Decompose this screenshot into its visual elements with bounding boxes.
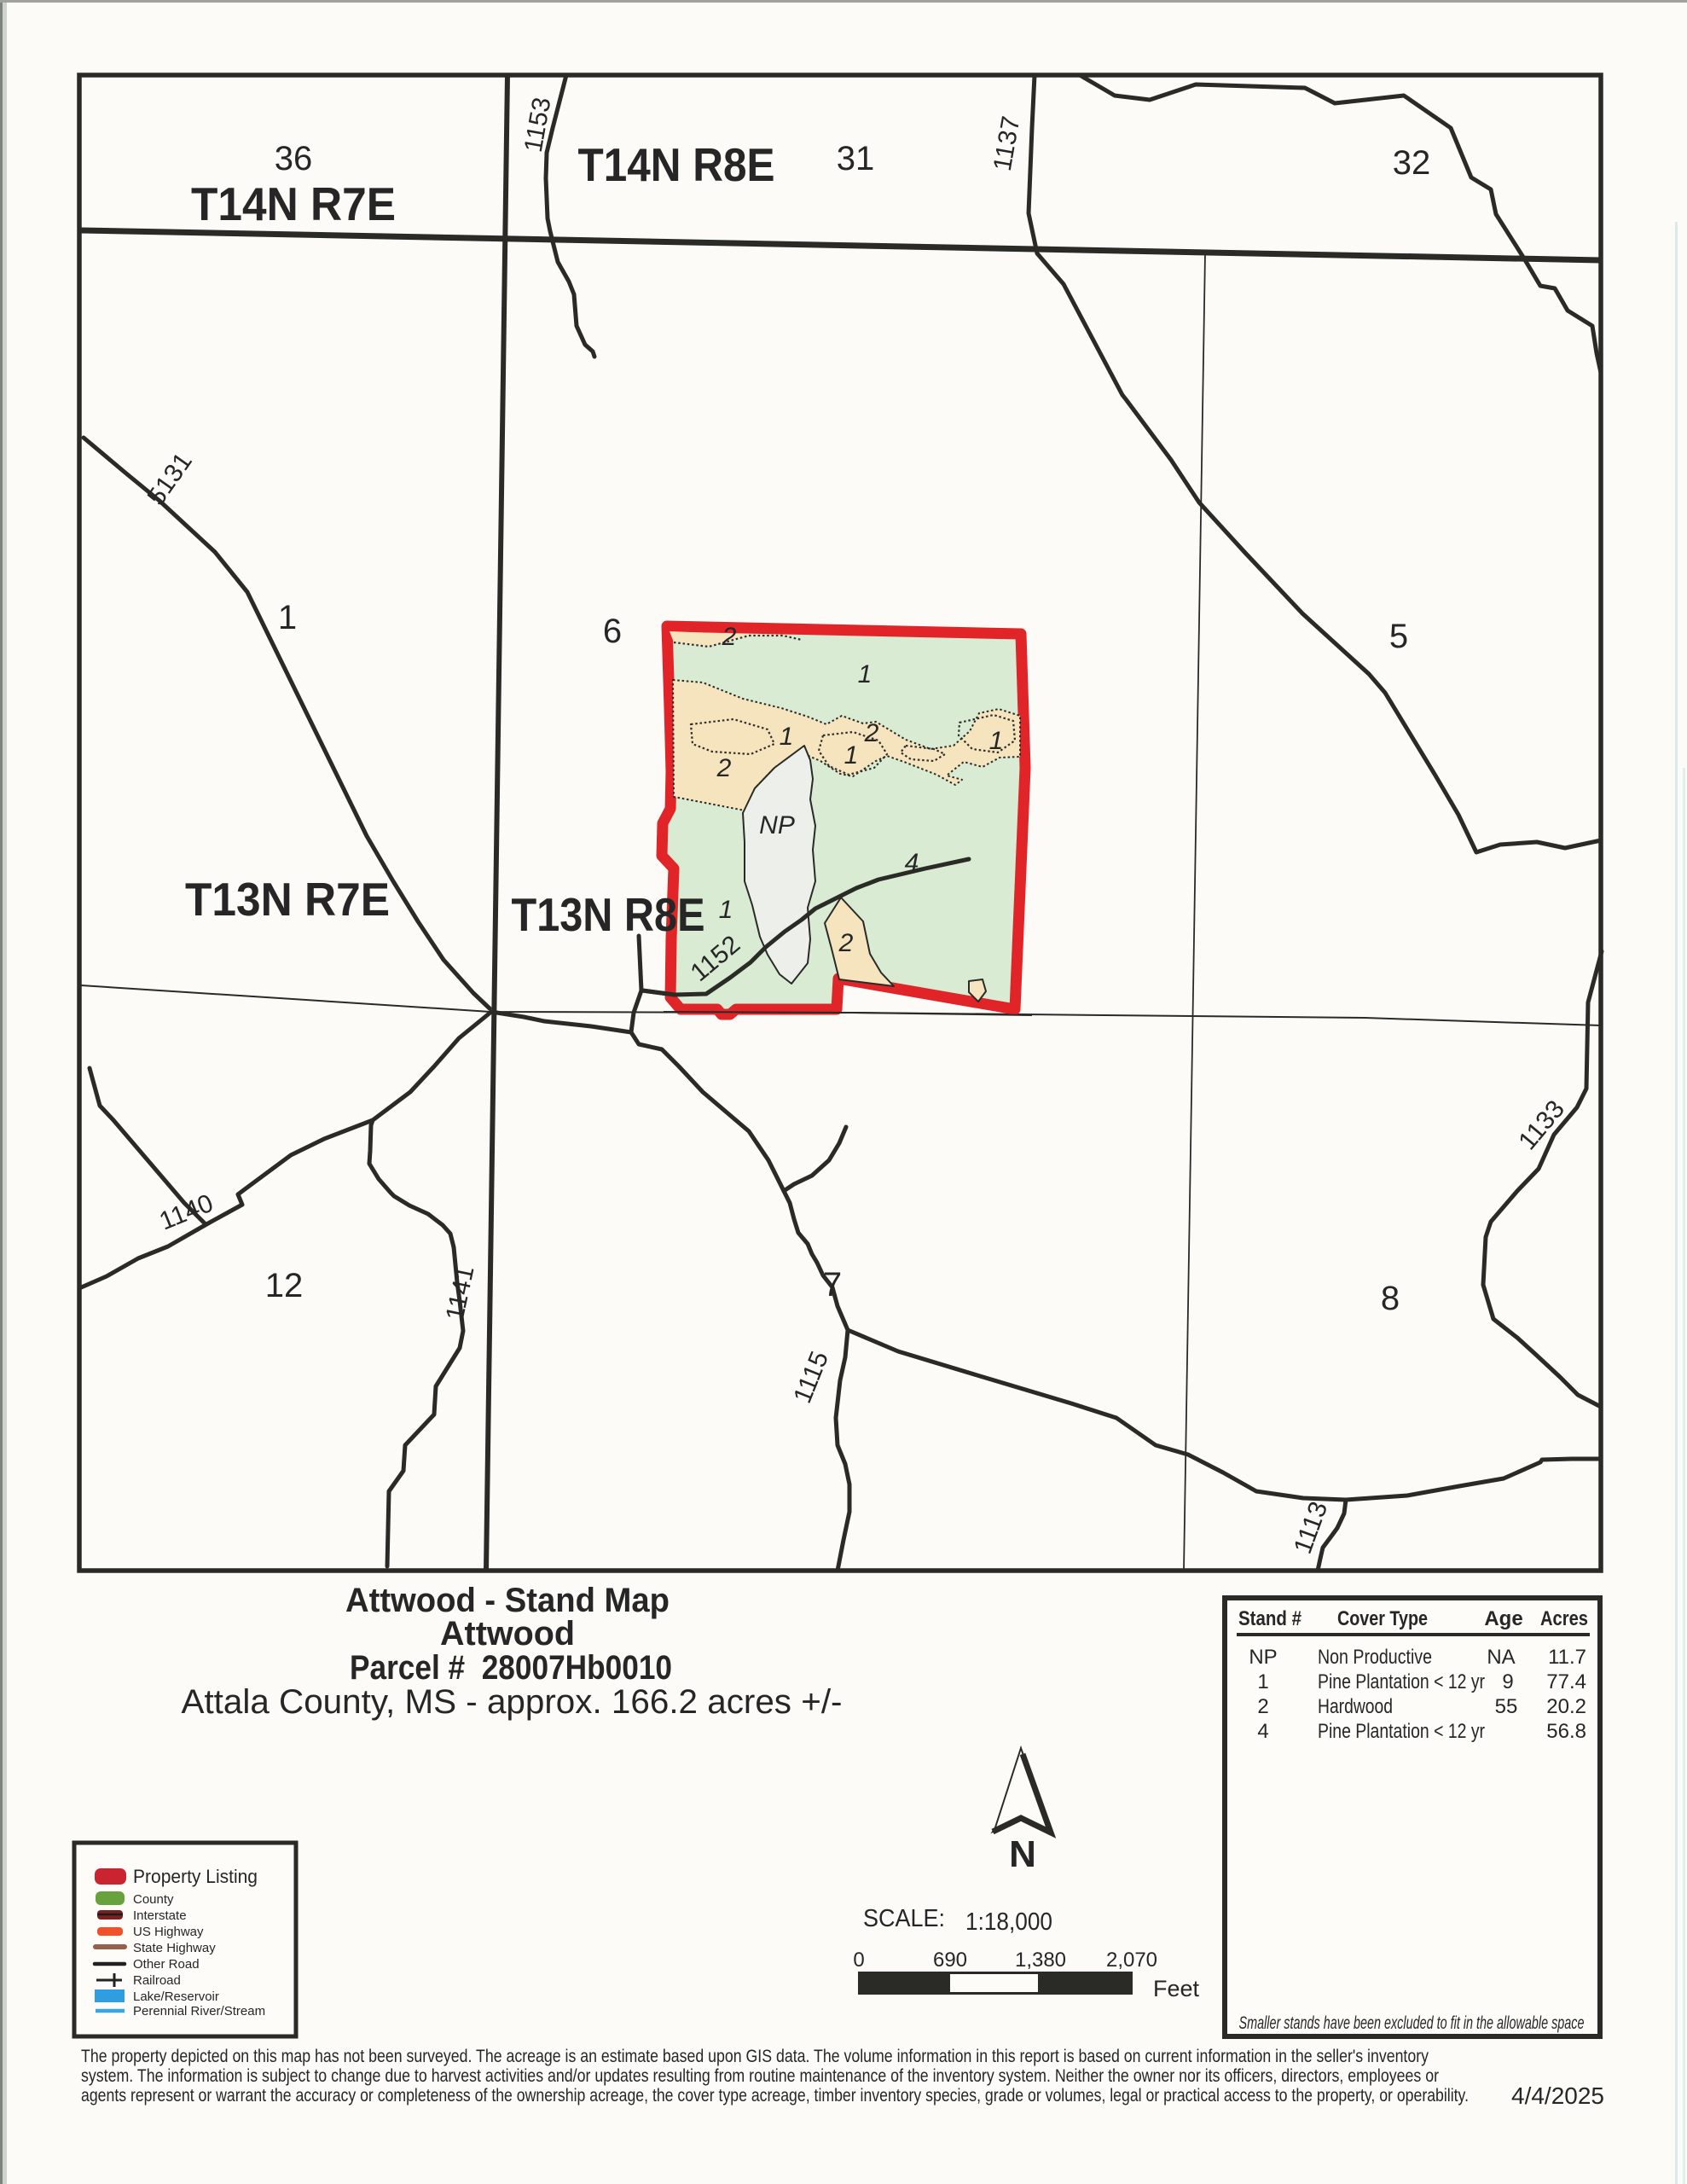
svg-text:1: 1 bbox=[780, 723, 794, 751]
svg-text:690: 690 bbox=[933, 1949, 967, 1972]
svg-text:Attwood: Attwood bbox=[440, 1615, 575, 1653]
svg-text:77.4: 77.4 bbox=[1546, 1670, 1586, 1693]
svg-text:Smaller stands have been exclu: Smaller stands have been excluded to fit… bbox=[1239, 2013, 1585, 2033]
svg-text:36: 36 bbox=[275, 140, 313, 177]
svg-text:Pine Plantation < 12 yr: Pine Plantation < 12 yr bbox=[1318, 1720, 1485, 1743]
svg-text:Hardwood: Hardwood bbox=[1318, 1695, 1393, 1718]
svg-text:County: County bbox=[133, 1892, 174, 1907]
svg-text:Attala County, MS - approx. 16: Attala County, MS - approx. 166.2 acres … bbox=[182, 1683, 843, 1721]
svg-text:T13N R8E: T13N R8E bbox=[512, 888, 705, 941]
svg-text:6: 6 bbox=[603, 613, 622, 650]
svg-text:2,070: 2,070 bbox=[1106, 1949, 1157, 1972]
svg-text:1: 1 bbox=[719, 896, 733, 924]
svg-text:Lake/Reservoir: Lake/Reservoir bbox=[133, 1989, 219, 2004]
svg-text:NP: NP bbox=[759, 811, 795, 839]
svg-text:NA: NA bbox=[1487, 1646, 1515, 1669]
svg-text:8: 8 bbox=[1381, 1280, 1400, 1317]
svg-text:Acres: Acres bbox=[1540, 1607, 1588, 1630]
svg-text:7: 7 bbox=[823, 1266, 842, 1304]
svg-text:Parcel # 28007Hb0010: Parcel # 28007Hb0010 bbox=[350, 1649, 672, 1687]
svg-text:56.8: 56.8 bbox=[1546, 1720, 1586, 1743]
svg-text:4: 4 bbox=[905, 849, 919, 877]
svg-text:The property depicted on this: The property depicted on this map has no… bbox=[81, 2047, 1429, 2066]
svg-text:T14N R8E: T14N R8E bbox=[578, 138, 775, 191]
svg-text:4: 4 bbox=[1257, 1720, 1268, 1743]
svg-text:55: 55 bbox=[1495, 1695, 1518, 1718]
svg-text:12: 12 bbox=[265, 1267, 304, 1304]
svg-text:SCALE:: SCALE: bbox=[863, 1905, 945, 1932]
svg-text:Non Productive: Non Productive bbox=[1318, 1646, 1432, 1669]
svg-text:11.7: 11.7 bbox=[1548, 1646, 1586, 1669]
svg-text:Pine Plantation < 12 yr: Pine Plantation < 12 yr bbox=[1318, 1670, 1485, 1693]
svg-text:Cover Type: Cover Type bbox=[1337, 1607, 1428, 1630]
svg-text:32: 32 bbox=[1393, 144, 1431, 182]
svg-text:Property Listing: Property Listing bbox=[133, 1866, 258, 1887]
svg-text:system. The information is su: system. The information is subject to ch… bbox=[81, 2066, 1439, 2086]
svg-text:1: 1 bbox=[989, 727, 1004, 755]
svg-text:2: 2 bbox=[864, 719, 879, 747]
svg-text:1,380: 1,380 bbox=[1015, 1949, 1066, 1972]
svg-text:Perennial River/Stream: Perennial River/Stream bbox=[133, 2004, 265, 2018]
svg-text:Railroad: Railroad bbox=[133, 1973, 181, 1988]
svg-text:1: 1 bbox=[858, 660, 872, 688]
svg-text:1: 1 bbox=[278, 599, 297, 636]
svg-text:1:18,000: 1:18,000 bbox=[965, 1908, 1052, 1936]
svg-text:2: 2 bbox=[716, 754, 732, 782]
svg-text:31: 31 bbox=[837, 140, 875, 177]
svg-text:T13N R7E: T13N R7E bbox=[185, 873, 390, 926]
svg-text:2: 2 bbox=[838, 929, 854, 957]
svg-text:Age: Age bbox=[1484, 1607, 1522, 1630]
svg-text:Feet: Feet bbox=[1153, 1976, 1200, 2001]
svg-text:Other Road: Other Road bbox=[133, 1957, 200, 1972]
svg-text:0: 0 bbox=[853, 1949, 864, 1972]
svg-text:2: 2 bbox=[1257, 1695, 1268, 1718]
svg-text:5: 5 bbox=[1389, 618, 1408, 655]
svg-text:1: 1 bbox=[844, 741, 859, 770]
svg-text:N: N bbox=[1009, 1833, 1036, 1875]
svg-text:Attwood - Stand Map: Attwood - Stand Map bbox=[345, 1582, 670, 1619]
svg-text:20.2: 20.2 bbox=[1546, 1695, 1586, 1718]
svg-text:2: 2 bbox=[722, 623, 737, 651]
svg-text:T14N R7E: T14N R7E bbox=[191, 177, 396, 230]
svg-text:1: 1 bbox=[1257, 1670, 1268, 1693]
svg-text:State Highway: State Highway bbox=[133, 1941, 216, 1955]
svg-text:Stand #: Stand # bbox=[1238, 1607, 1301, 1630]
svg-text:US Highway: US Highway bbox=[133, 1925, 204, 1939]
svg-text:4/4/2025: 4/4/2025 bbox=[1511, 2082, 1604, 2109]
svg-text:NP: NP bbox=[1249, 1646, 1277, 1669]
svg-text:agents represent or warrant th: agents represent or warrant the accuracy… bbox=[81, 2086, 1469, 2106]
svg-text:9: 9 bbox=[1502, 1670, 1513, 1693]
svg-text:Interstate: Interstate bbox=[133, 1908, 187, 1923]
